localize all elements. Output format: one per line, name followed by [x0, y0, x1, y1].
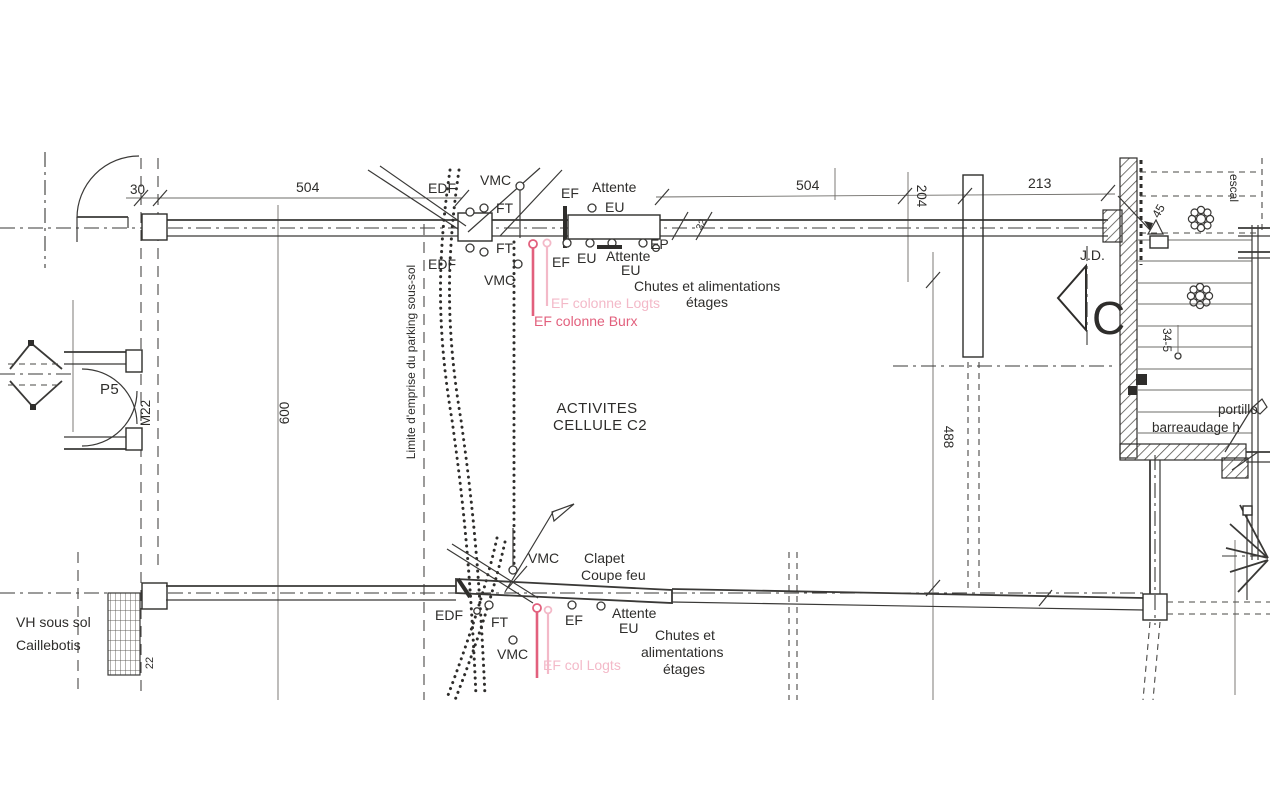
label-eu2-top: EU	[577, 250, 596, 266]
label-portillon: portillo	[1218, 402, 1258, 417]
label-edf-bottom: EDF	[435, 607, 463, 623]
label-chutes-top-2: étages	[686, 294, 728, 310]
dim-204: 204	[914, 185, 929, 208]
label-chutes-bottom-2: alimentations	[641, 644, 724, 660]
label-vmc-bottom: VMC	[528, 550, 559, 566]
label-eu-top: EU	[605, 199, 624, 215]
dim-213: 213	[1028, 175, 1052, 191]
section-letter-c: C	[1092, 292, 1125, 344]
floor-plan-drawing: 30 504 504 204 213 32	[0, 0, 1270, 800]
label-eu-bottom: EU	[619, 620, 638, 636]
label-ft2-top: FT	[496, 240, 514, 256]
label-jd: J.D.	[1080, 247, 1105, 263]
dim-30: 30	[130, 182, 145, 197]
label-edf-top: EDF	[428, 180, 456, 196]
label-ef2-top: EF	[552, 254, 570, 270]
dim-22: 22	[144, 657, 156, 669]
label-limite-emprise: Limite d'emprise du parking sous-sol	[404, 265, 418, 459]
label-p5: P5	[100, 381, 119, 398]
label-chutes-top-1: Chutes et alimentations	[634, 278, 780, 294]
label-chutes-bottom-3: étages	[663, 661, 705, 677]
label-clapet-1: Clapet	[584, 550, 625, 566]
label-vh-sous-sol: VH sous sol	[16, 614, 91, 630]
label-escal: escal	[1227, 174, 1241, 202]
room-name-line1: ACTIVITES	[556, 400, 637, 417]
dim-600: 600	[277, 402, 292, 425]
label-barreaudage: barreaudage h	[1152, 420, 1240, 435]
room-name-line2: CELLULE C2	[553, 417, 647, 434]
label-ef-bottom: EF	[565, 612, 583, 628]
label-vmc2-bottom: VMC	[497, 646, 528, 662]
dim-34-5: 34-5	[1160, 328, 1174, 352]
label-ef-colonne-burx: EF colonne Burx	[534, 313, 638, 329]
floor-plan-page: 30 504 504 204 213 32	[0, 0, 1270, 800]
label-ep-top: EP	[650, 236, 669, 252]
label-clapet-2: Coupe feu	[581, 567, 646, 583]
dim-504-right: 504	[796, 177, 820, 193]
label-caillebotis: Caillebotis	[16, 637, 81, 653]
label-vmc-top: VMC	[480, 172, 511, 188]
dim-504-left: 504	[296, 179, 320, 195]
label-edf2-top: EDF	[428, 256, 456, 272]
label-ef-top: EF	[561, 185, 579, 201]
label-m22: M22	[138, 400, 153, 426]
label-eu3-top: EU	[621, 262, 640, 278]
label-chutes-bottom-1: Chutes et	[655, 627, 715, 643]
label-ft-top: FT	[496, 200, 514, 216]
label-attente-bottom: Attente	[612, 605, 657, 621]
label-vmc2-top: VMC	[484, 272, 515, 288]
dim-488: 488	[941, 426, 956, 449]
label-attente-top: Attente	[592, 179, 637, 195]
label-ef-col-logts-bottom: EF col Logts	[543, 657, 621, 673]
label-ef-colonne-logts: EF colonne Logts	[551, 295, 660, 311]
label-ft-bottom: FT	[491, 614, 509, 630]
caillebotis-grating	[108, 593, 140, 675]
